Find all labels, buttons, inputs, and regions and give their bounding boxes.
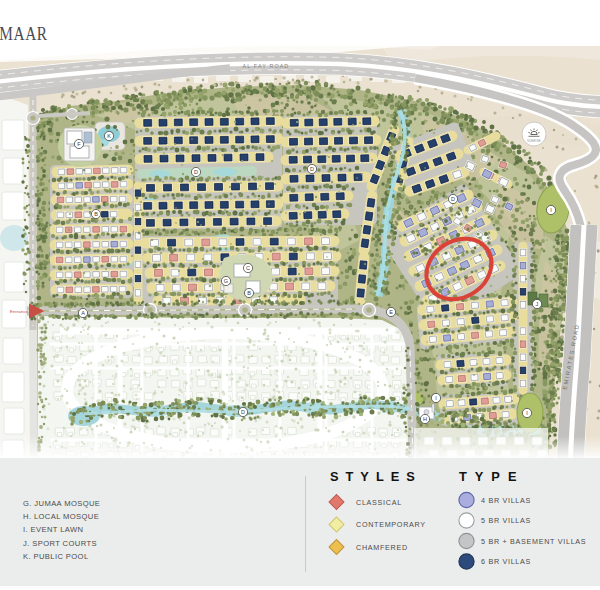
svg-text:H. LOCAL MOSQUE: H. LOCAL MOSQUE (23, 512, 99, 521)
svg-text:C: C (246, 265, 250, 271)
svg-text:D: D (310, 166, 314, 172)
svg-text:J. SPORT COURTS: J. SPORT COURTS (23, 539, 97, 548)
svg-text:MAAR: MAAR (0, 24, 48, 44)
svg-text:E: E (389, 309, 393, 315)
svg-text:G: G (224, 278, 228, 284)
svg-text:A: A (81, 310, 85, 316)
svg-text:STYLES: STYLES (330, 469, 422, 484)
svg-text:B: B (94, 211, 98, 217)
svg-text:D: D (241, 409, 245, 415)
svg-text:4 BR VILLAS: 4 BR VILLAS (481, 496, 531, 505)
svg-text:CONTEMPORARY: CONTEMPORARY (356, 520, 426, 529)
svg-text:6 BR VILLAS: 6 BR VILLAS (481, 557, 531, 566)
svg-text:CLASSICAL: CLASSICAL (356, 498, 402, 507)
svg-text:D: D (194, 169, 198, 175)
svg-text:K. PUBLIC POOL: K. PUBLIC POOL (23, 552, 89, 561)
svg-text:D: D (451, 196, 455, 202)
svg-text:H: H (423, 416, 427, 422)
svg-text:Entrance: Entrance (10, 309, 29, 314)
svg-text:J: J (536, 301, 539, 307)
svg-text:G. JUMAA MOSQUE: G. JUMAA MOSQUE (23, 499, 100, 508)
svg-text:K: K (107, 133, 111, 139)
svg-text:I. EVENT LAWN: I. EVENT LAWN (23, 525, 83, 534)
svg-text:5 BR VILLAS: 5 BR VILLAS (481, 516, 531, 525)
svg-text:TYPE: TYPE (459, 469, 524, 484)
svg-text:CHAMFERED: CHAMFERED (356, 543, 408, 552)
svg-text:B: B (247, 290, 251, 296)
svg-text:AL FAY ROAD: AL FAY ROAD (243, 63, 290, 69)
svg-text:SUNRISE: SUNRISE (527, 139, 541, 143)
svg-text:5 BR + BASEMENT VILLAS: 5 BR + BASEMENT VILLAS (481, 537, 586, 546)
svg-text:F: F (77, 141, 81, 147)
